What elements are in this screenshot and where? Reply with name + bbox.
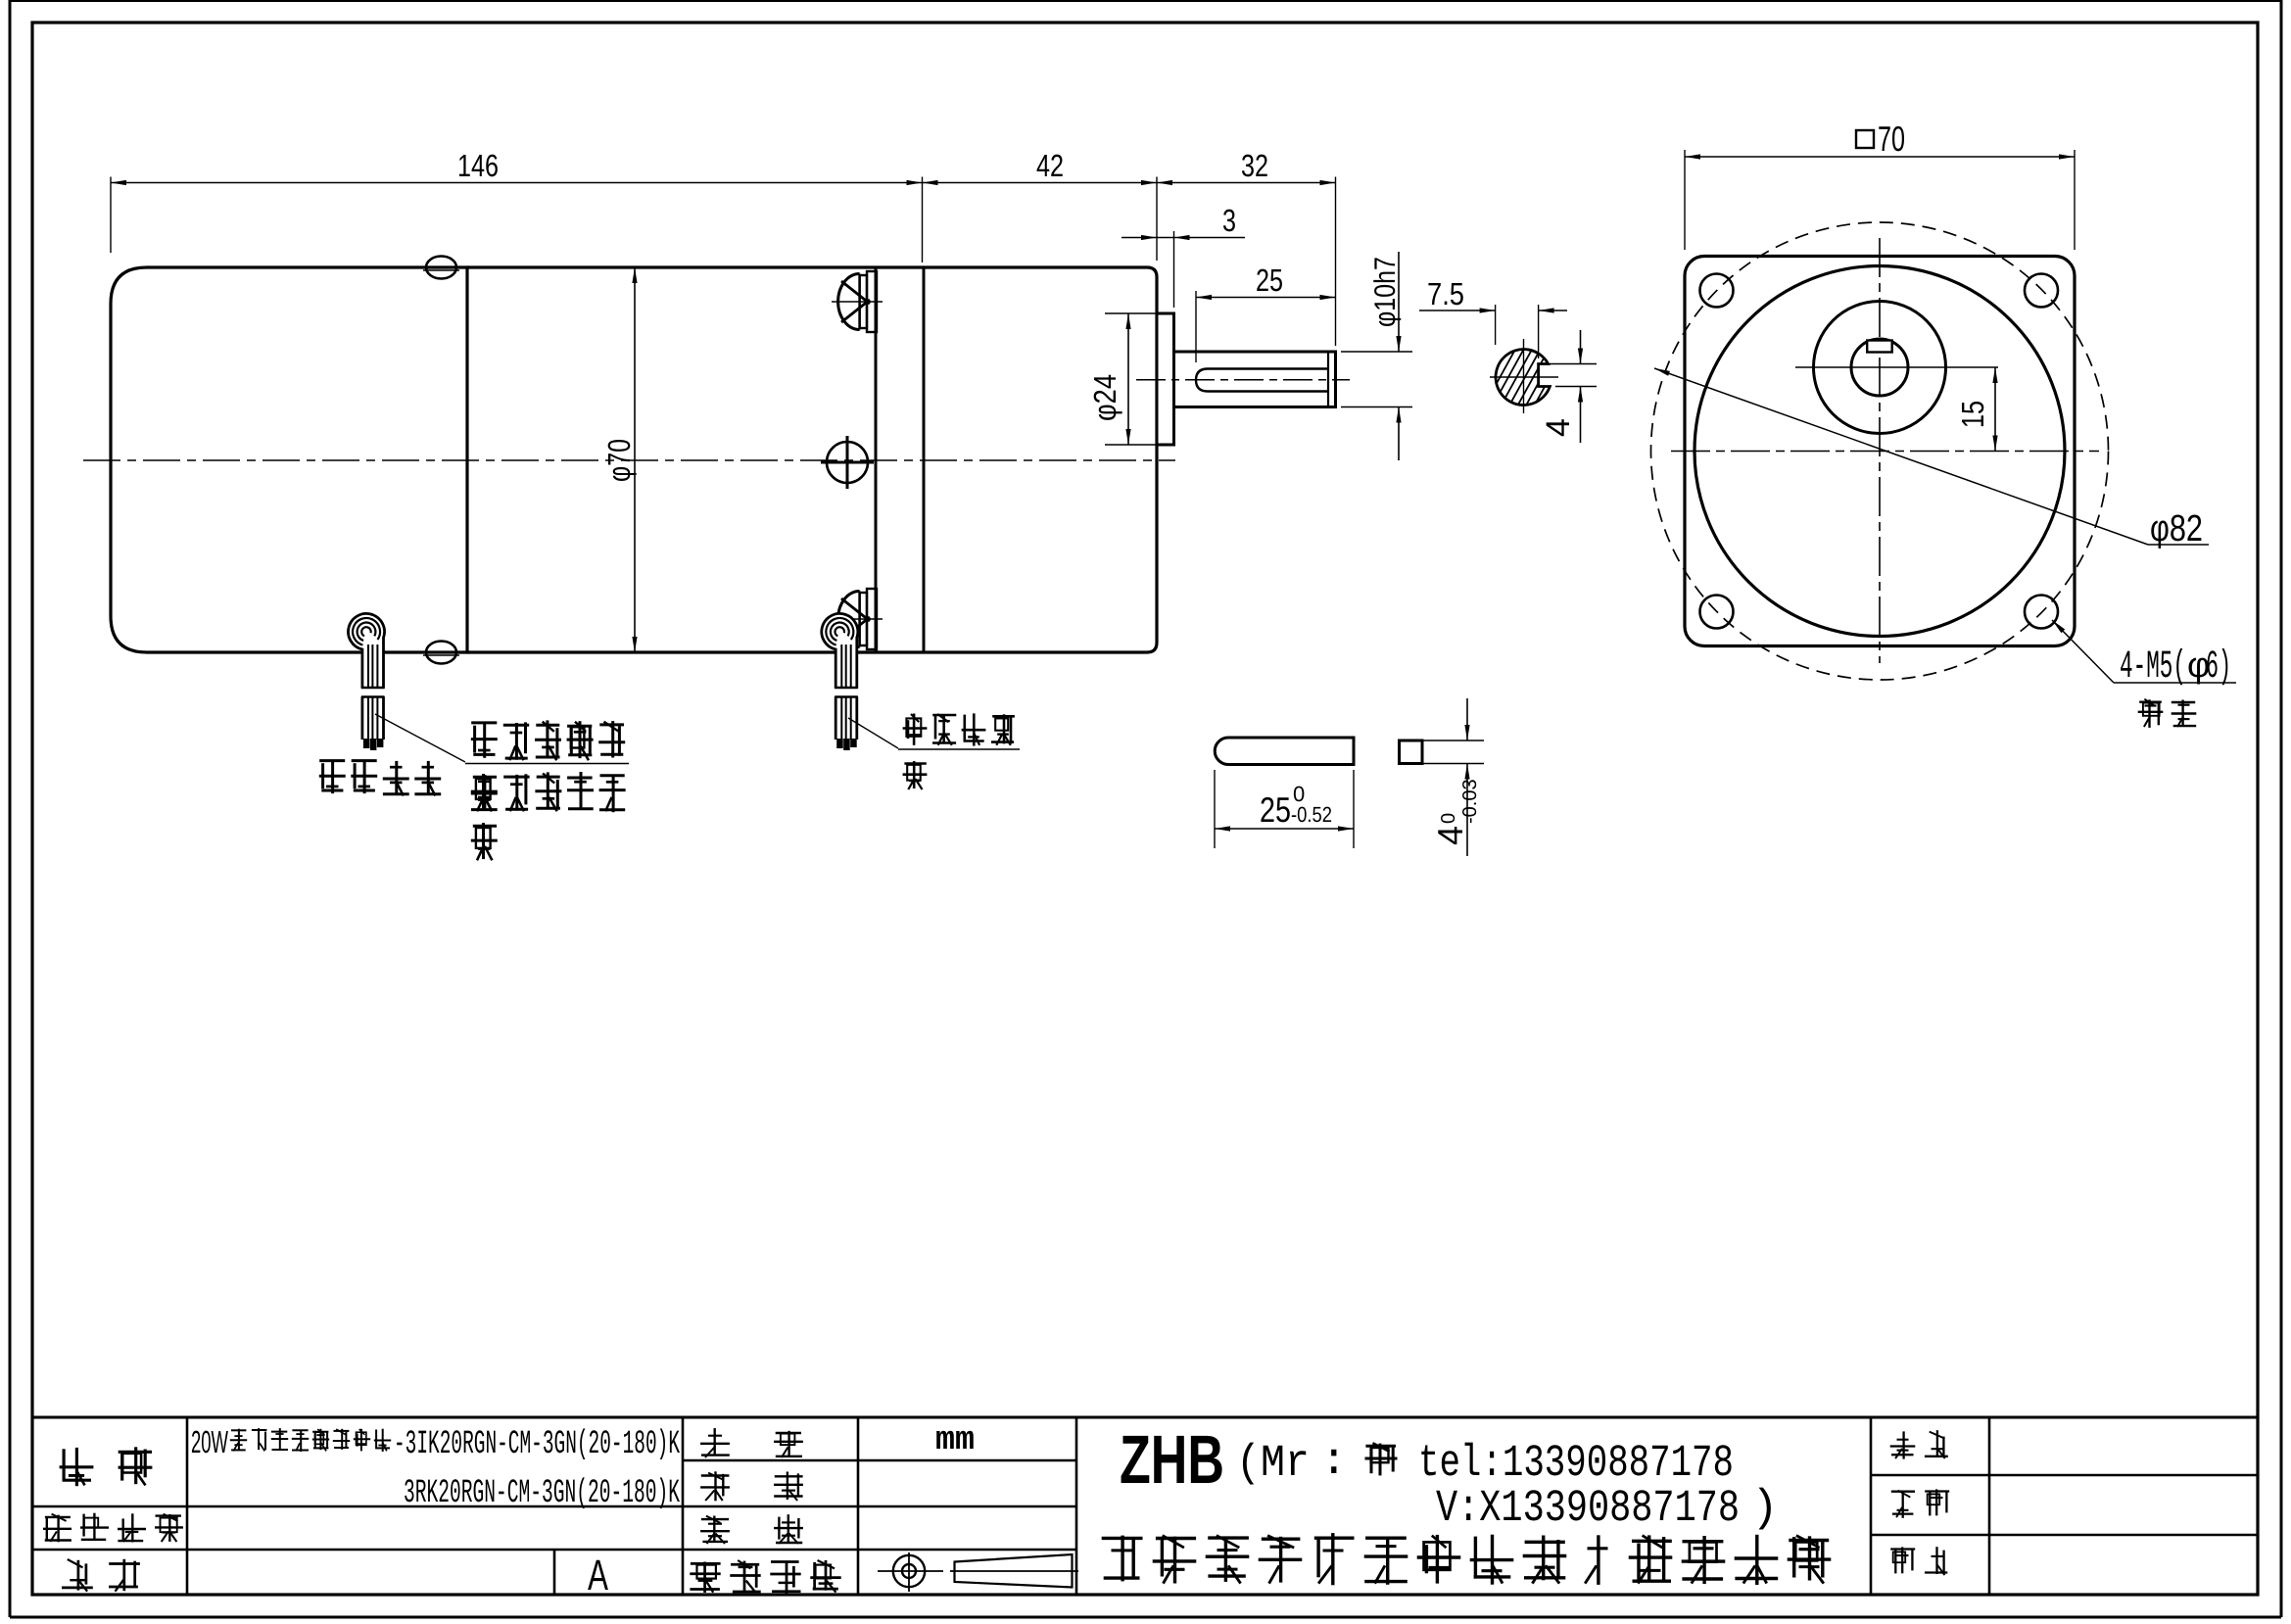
svg-text:0: 0 [1438,813,1459,824]
svg-text:15: 15 [1955,401,1990,428]
svg-text:φ10h7: φ10h7 [1369,257,1402,327]
svg-text:4: 4 [1540,418,1577,437]
svg-text:): ) [1751,1483,1779,1534]
svg-text:-0.52: -0.52 [1291,802,1332,827]
svg-text:3: 3 [1222,203,1236,238]
svg-text:-3IK20RGN-CM-3GN(20-180)K: -3IK20RGN-CM-3GN(20-180)K [394,1426,680,1463]
svg-text:tel:13390887178: tel:13390887178 [1418,1438,1734,1489]
svg-text:A: A [588,1552,608,1600]
svg-text:4-M5(: 4-M5( [2120,645,2186,690]
svg-text:146: 146 [457,148,499,183]
svg-text:7.5: 7.5 [1427,276,1464,311]
svg-text:3RK20RGN-CM-3GN(20-180)K: 3RK20RGN-CM-3GN(20-180)K [404,1475,680,1512]
svg-text:φ24: φ24 [1087,374,1122,421]
svg-text:-0.03: -0.03 [1459,779,1481,824]
svg-text:70: 70 [1878,119,1905,159]
svg-text:42: 42 [1036,148,1064,183]
svg-text:6): 6) [2206,645,2231,690]
svg-text:25: 25 [1256,263,1283,298]
svg-text:25: 25 [1260,789,1291,830]
svg-text:20W: 20W [191,1424,228,1459]
svg-text:mm: mm [935,1422,975,1459]
svg-text:(Mr: (Mr [1236,1438,1310,1489]
svg-text:φ82: φ82 [2150,508,2203,549]
svg-text:V:X13390887178: V:X13390887178 [1436,1483,1740,1534]
svg-text::: : [1320,1436,1348,1487]
svg-text:4: 4 [1430,826,1470,845]
svg-text:32: 32 [1241,148,1268,183]
svg-text:ZHB: ZHB [1120,1421,1224,1498]
svg-text:φ70: φ70 [601,439,637,482]
